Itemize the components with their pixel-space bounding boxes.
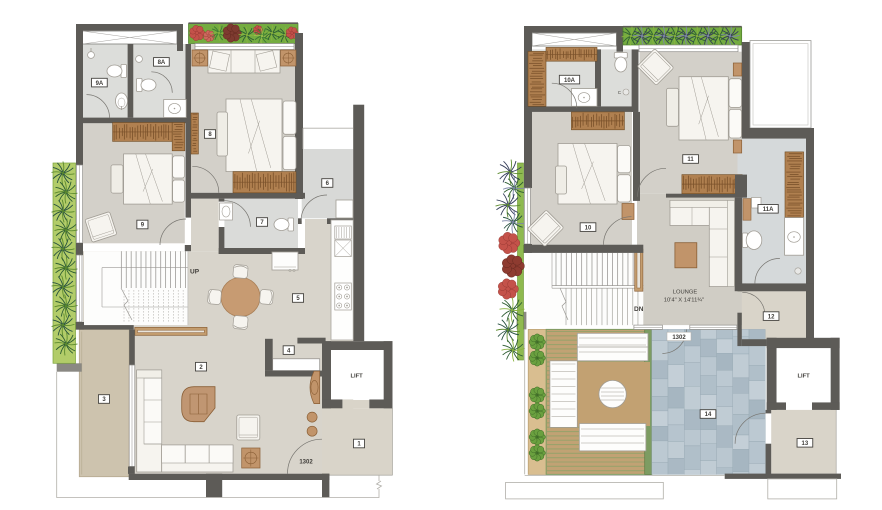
svg-text:8A: 8A xyxy=(158,60,166,66)
svg-text:10: 10 xyxy=(585,225,592,231)
svg-text:9A: 9A xyxy=(96,81,104,87)
svg-text:LOUNGE: LOUNGE xyxy=(673,290,698,296)
svg-text:10A: 10A xyxy=(564,78,576,84)
svg-text:LIFT: LIFT xyxy=(797,373,810,379)
svg-text:14: 14 xyxy=(705,412,712,418)
svg-text:10'4" X 14'11¾": 10'4" X 14'11¾" xyxy=(664,298,704,304)
svg-text:DN: DN xyxy=(634,306,644,313)
svg-text:12: 12 xyxy=(768,314,775,320)
svg-text:LIFT: LIFT xyxy=(350,374,363,380)
svg-text:11A: 11A xyxy=(763,207,774,213)
svg-text:UP: UP xyxy=(190,269,200,276)
svg-text:11: 11 xyxy=(687,157,694,163)
svg-text:13: 13 xyxy=(802,441,809,447)
svg-text:1302: 1302 xyxy=(299,460,313,466)
svg-text:1302: 1302 xyxy=(672,335,686,341)
